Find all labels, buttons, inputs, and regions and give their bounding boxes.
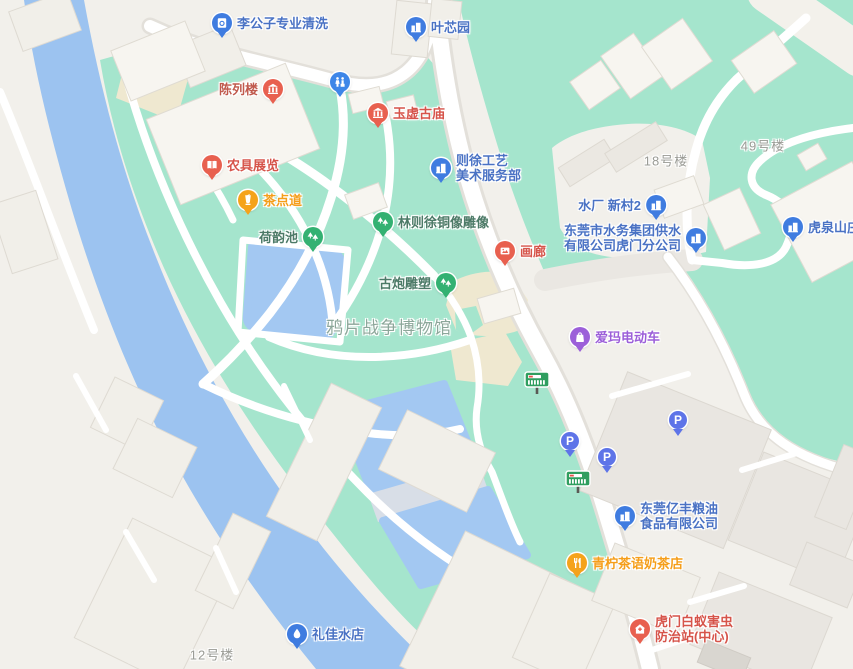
poi-label: 青柠茶语奶茶店	[592, 556, 683, 571]
area-label: 鸦片战争博物馆	[326, 314, 452, 339]
cup-icon	[238, 190, 258, 210]
parking-icon: P	[669, 411, 687, 429]
poi-marker[interactable]: 则徐工艺美术服务部	[431, 153, 521, 183]
poi-marker[interactable]: 爱玛电动车	[570, 327, 660, 347]
building-icon	[431, 158, 451, 178]
poi-marker[interactable]: 东莞市水务集团供水有限公司虎门分公司	[564, 223, 706, 253]
poi-label: 爱玛电动车	[595, 330, 660, 345]
temple-icon	[368, 103, 388, 123]
parking-icon: P	[561, 432, 579, 450]
poi-label: 古炮雕塑	[379, 276, 431, 291]
building-icon	[406, 17, 426, 37]
building-icon	[646, 195, 666, 215]
museum-icon	[263, 79, 283, 99]
trees-icon	[373, 212, 393, 232]
poi-marker[interactable]: 李公子专业清洗	[212, 13, 328, 33]
fork-icon	[567, 553, 587, 573]
poi-marker[interactable]: 荷韵池	[259, 227, 323, 247]
parking-marker[interactable]: P	[669, 411, 687, 429]
toilet-marker[interactable]	[330, 72, 350, 92]
poi-marker[interactable]: 青柠茶语奶茶店	[567, 553, 683, 573]
book-icon	[202, 155, 222, 175]
poi-marker[interactable]: 玉虚古庙	[368, 103, 445, 123]
trees-icon	[303, 227, 323, 247]
poi-marker[interactable]: 画廊	[495, 241, 546, 261]
poi-label: 荷韵池	[259, 230, 298, 245]
bag-icon	[570, 327, 590, 347]
trees-icon	[436, 273, 456, 293]
drop-icon	[287, 624, 307, 644]
poi-label: 玉虚古庙	[393, 106, 445, 121]
map-canvas[interactable]: 李公子专业清洗叶芯园陈列楼玉虚古庙则徐工艺美术服务部农具展览茶点道水厂 新村2林…	[0, 0, 853, 669]
poi-label: 东莞亿丰粮油食品有限公司	[640, 501, 718, 531]
frame-icon	[495, 241, 515, 261]
poi-label: 水厂 新村2	[578, 198, 641, 213]
poi-marker[interactable]: 虎门白蚁害虫防治站(中心)	[630, 614, 733, 644]
poi-marker[interactable]: 林则徐铜像雕像	[373, 212, 489, 232]
poi-label: 虎门白蚁害虫防治站(中心)	[655, 614, 733, 644]
area-label: 18号楼	[644, 151, 688, 170]
wc-icon	[330, 72, 350, 92]
poi-marker[interactable]: 叶芯园	[406, 17, 470, 37]
poi-marker[interactable]: 水厂 新村2	[578, 195, 666, 215]
area-label: 49号楼	[741, 136, 785, 155]
area-label: 12号楼	[190, 645, 234, 664]
poi-marker[interactable]: 古炮雕塑	[379, 273, 456, 293]
building-icon	[615, 506, 635, 526]
poi-label: 虎泉山庄	[808, 220, 853, 235]
poi-label: 画廊	[520, 244, 546, 259]
bus-stop-icon	[524, 371, 550, 396]
parking-marker[interactable]: P	[598, 448, 616, 466]
poi-marker[interactable]: 茶点道	[238, 190, 302, 210]
parking-marker[interactable]: P	[561, 432, 579, 450]
house-icon	[630, 619, 650, 639]
poi-label: 陈列楼	[219, 82, 258, 97]
bus-stop-marker[interactable]	[524, 371, 550, 401]
poi-label: 茶点道	[263, 193, 302, 208]
building-icon	[686, 228, 706, 248]
washer-icon	[212, 13, 232, 33]
poi-label: 农具展览	[227, 158, 279, 173]
parking-icon: P	[598, 448, 616, 466]
poi-label: 则徐工艺美术服务部	[456, 153, 521, 183]
poi-label: 东莞市水务集团供水有限公司虎门分公司	[564, 223, 681, 253]
poi-marker[interactable]: 礼佳水店	[287, 624, 364, 644]
poi-marker[interactable]: 陈列楼	[219, 79, 283, 99]
poi-marker[interactable]: 虎泉山庄	[783, 217, 853, 237]
building-icon	[783, 217, 803, 237]
poi-marker[interactable]: 农具展览	[202, 155, 279, 175]
poi-label: 林则徐铜像雕像	[398, 215, 489, 230]
bus-stop-icon	[565, 470, 591, 495]
poi-marker[interactable]: 东莞亿丰粮油食品有限公司	[615, 501, 718, 531]
bus-stop-marker[interactable]	[565, 470, 591, 500]
poi-label: 叶芯园	[431, 20, 470, 35]
poi-label: 礼佳水店	[312, 627, 364, 642]
poi-label: 李公子专业清洗	[237, 16, 328, 31]
